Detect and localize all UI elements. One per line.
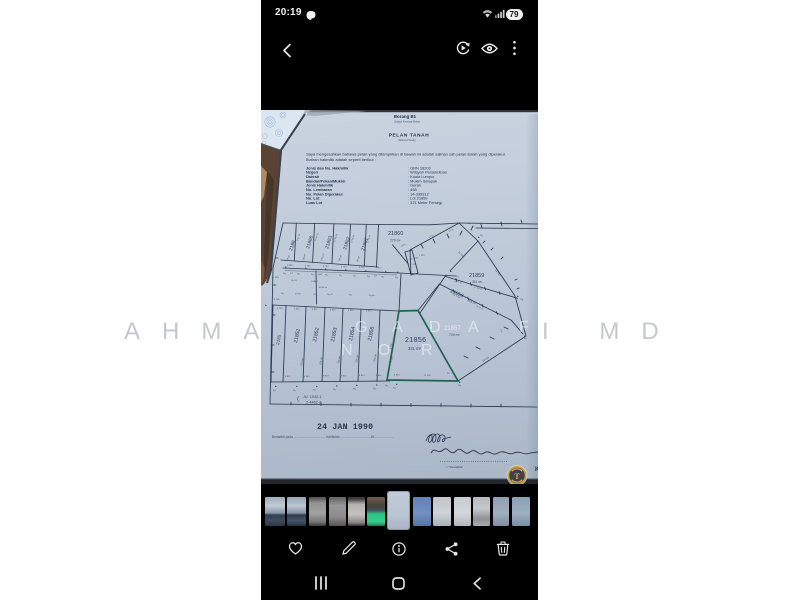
svg-text:24 JAN 1990: 24 JAN 1990	[317, 423, 373, 432]
svg-text:2-4462-2: 2-4462-2	[306, 401, 321, 405]
svg-text:4 726: 4 726	[277, 308, 283, 310]
svg-text:97 m²: 97 m²	[356, 255, 361, 262]
svg-text:4 712: 4 712	[376, 268, 382, 270]
svg-text:· ¹ ᵖ Pendaftar: · ¹ ᵖ Pendaftar	[444, 465, 463, 469]
svg-text:6 813: 6 813	[330, 310, 336, 312]
svg-text:Pg: Pg	[458, 385, 461, 387]
svg-text:Pg 25: Pg 25	[327, 294, 333, 296]
svg-text:4 81c: 4 81c	[376, 375, 382, 377]
svg-text:Pg 26: Pg 26	[291, 280, 297, 282]
svg-text:19 228: 19 228	[482, 356, 490, 363]
svg-text:21 928: 21 928	[424, 375, 431, 377]
svg-text:Butiran hakmilik adalah sepert: Butiran hakmilik adalah seperti berikut …	[306, 157, 376, 162]
svg-text:756 m²: 756 m²	[372, 353, 378, 362]
svg-text:4 706: 4 706	[274, 299, 280, 301]
svg-text:x 709: x 709	[273, 277, 279, 279]
svg-text:K: K	[535, 467, 538, 473]
svg-text:Pg: Pg	[325, 275, 328, 277]
svg-text:Pg: Pg	[293, 390, 296, 392]
svg-text:Pg: Pg	[456, 276, 459, 278]
svg-text:8°37 20: 8°37 20	[297, 233, 301, 241]
svg-text:Luas Lot: Luas Lot	[306, 200, 323, 205]
svg-text:1 515: 1 515	[411, 264, 417, 266]
svg-text:6 813: 6 813	[341, 376, 347, 378]
svg-text:Saya mengesahkan bahawa pelan: Saya mengesahkan bahawa pelan yang dilam…	[306, 152, 506, 157]
svg-text:(Jadual Keempat Belas): (Jadual Keempat Belas)	[394, 120, 420, 123]
svg-text:Bertarikh pada ...............: Bertarikh pada .........................…	[272, 435, 394, 439]
svg-text:16 35 30: 16 35 30	[315, 232, 320, 241]
svg-text:6 813: 6 813	[323, 376, 329, 378]
svg-text:21859: 21859	[469, 273, 484, 279]
svg-text:321 m²: 321 m²	[408, 346, 422, 351]
svg-text:268°: 268°	[318, 274, 323, 276]
svg-text:74: 74	[313, 294, 316, 296]
svg-text:T: T	[514, 472, 520, 481]
svg-text:Pg: Pg	[349, 295, 352, 297]
svg-text:4 498: 4 498	[287, 265, 293, 267]
svg-text:17 25 30: 17 25 30	[367, 234, 372, 243]
svg-text:6 813: 6 813	[348, 310, 354, 312]
svg-text:6 811: 6 811	[312, 309, 318, 311]
svg-text:Pg: Pg	[385, 385, 388, 387]
svg-text:4 725: 4 725	[449, 229, 455, 233]
svg-text:21851: 21851	[293, 328, 302, 343]
svg-text:Pg: Pg	[521, 299, 524, 301]
svg-text:6 712: 6 712	[359, 267, 365, 269]
svg-text:Pg: Pg	[273, 390, 276, 392]
svg-text:104°27′40″: 104°27′40″	[409, 257, 419, 261]
svg-text:Pg: Pg	[381, 277, 384, 279]
svg-text:50 m²: 50 m²	[302, 253, 307, 260]
svg-text:311 m²: 311 m²	[472, 280, 483, 284]
svg-text:Pg: Pg	[311, 274, 314, 276]
svg-text:58': 58'	[374, 275, 377, 277]
svg-text:97 m²: 97 m²	[338, 254, 343, 261]
svg-text:6 870: 6 870	[366, 311, 372, 313]
svg-text:Pg: Pg	[283, 273, 286, 275]
svg-text:23 843: 23 843	[494, 269, 501, 277]
svg-text:(Maksud Tanah): (Maksud Tanah)	[398, 139, 415, 142]
svg-text:1 525: 1 525	[419, 255, 425, 257]
svg-text:Pg: Pg	[353, 276, 356, 278]
svg-text:23 73: 23 73	[295, 293, 301, 295]
svg-text:10 A61: 10 A61	[311, 280, 319, 283]
svg-text:Pg: Pg	[313, 390, 316, 392]
svg-text:6 815: 6 815	[285, 376, 291, 378]
svg-text:2185: 2185	[275, 334, 282, 345]
svg-text:Pg: Pg	[480, 235, 483, 237]
svg-text:Pg: Pg	[373, 388, 376, 390]
svg-text:4 743: 4 743	[341, 267, 347, 269]
svg-text:4 05: 4 05	[499, 329, 503, 334]
svg-text:4 043: 4 043	[391, 356, 394, 363]
svg-text:709 m²: 709 m²	[449, 333, 460, 337]
svg-text:5 413: 5 413	[294, 309, 300, 311]
svg-text:Pg: Pg	[281, 293, 284, 295]
svg-text:Pg: Pg	[395, 277, 398, 279]
svg-text:21860: 21860	[388, 231, 403, 237]
svg-text:: 321 Meter Persegi: : 321 Meter Persegi	[408, 200, 442, 205]
svg-text:36 86 m: 36 86 m	[319, 287, 327, 289]
svg-text:Borang B1: Borang B1	[394, 114, 417, 119]
svg-text:PELAN TANAH: PELAN TANAH	[389, 133, 430, 139]
svg-text:172 m²: 172 m²	[320, 253, 325, 261]
svg-text:» 6:-: » 6:-	[466, 223, 471, 225]
svg-text:23 224 4: 23 224 4	[476, 306, 483, 311]
svg-text:Pg: Pg	[393, 388, 396, 390]
svg-text:26': 26'	[447, 373, 450, 375]
svg-text:Pg 8a: Pg 8a	[369, 295, 375, 297]
svg-text:279 m²: 279 m²	[390, 239, 401, 243]
svg-text:4 043: 4 043	[304, 376, 310, 378]
svg-text:Pg: Pg	[353, 389, 356, 391]
svg-text:JU. 1042-1: JU. 1042-1	[303, 395, 322, 399]
svg-text:17 35 30: 17 35 30	[334, 233, 339, 242]
svg-text:24*: 24*	[290, 273, 293, 275]
svg-text:4 575: 4 575	[401, 244, 407, 248]
svg-text:Pg: Pg	[367, 276, 370, 278]
svg-text:17 35 30: 17 35 30	[351, 234, 356, 243]
svg-text:21857: 21857	[444, 326, 461, 332]
svg-text:Pg: Pg	[339, 275, 342, 277]
svg-text:21852: 21852	[312, 327, 321, 342]
svg-text:6 743: 6 743	[323, 266, 329, 268]
svg-text:153 m²: 153 m²	[467, 298, 477, 305]
svg-text:6 813: 6 813	[359, 375, 365, 377]
svg-text:Pg: Pg	[297, 274, 300, 276]
svg-text:6 813: 6 813	[394, 375, 400, 377]
svg-text:6 793: 6 793	[305, 266, 311, 268]
svg-text:21853: 21853	[330, 327, 339, 342]
svg-text:21855: 21855	[367, 326, 376, 341]
svg-text:Pg: Pg	[333, 389, 336, 391]
